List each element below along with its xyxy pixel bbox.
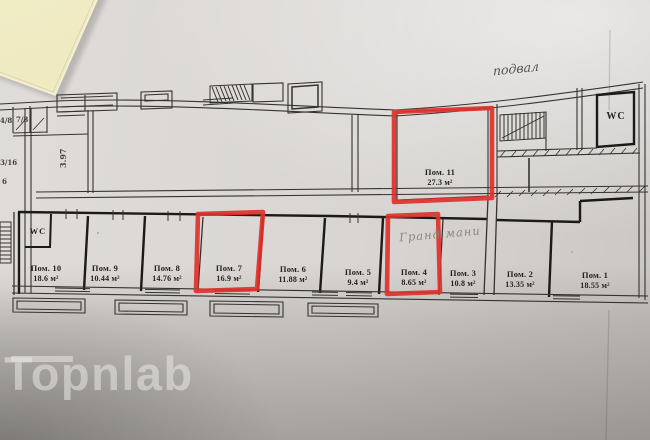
- room-name: Пом. 6: [257, 264, 329, 275]
- sticky-note: [0, 0, 146, 101]
- dimension-frac-c: 3/16: [0, 158, 17, 167]
- room-label-11: Пом. 11 27.3 м²: [404, 167, 476, 188]
- room-area: 11.88 м²: [257, 275, 329, 286]
- wc-lower-label: WC: [25, 226, 51, 236]
- room-label-7: Пом. 7 16.9 м²: [193, 263, 265, 284]
- room-name: Пом. 2: [484, 269, 556, 280]
- staircase-left-icon: [0, 222, 11, 263]
- room-name: Пом. 11: [404, 167, 476, 178]
- staircase-top-icon: [210, 84, 252, 103]
- dimension-height: 3.97: [58, 149, 68, 168]
- watermark-logo: Topnlab: [4, 346, 194, 401]
- staircase-right-icon: [500, 112, 546, 141]
- room-label-1: Пом. 1 18.55 м²: [559, 270, 631, 291]
- floor-plan-photo: подвал Гранд мани Пом. 11 27.3 м² WC WC …: [0, 0, 650, 440]
- room-area: 27.3 м²: [404, 178, 476, 189]
- room-area: 16.9 м²: [193, 274, 265, 285]
- dimension-frac-b: 7/8: [16, 115, 28, 124]
- room-label-6: Пом. 6 11.88 м²: [257, 264, 329, 285]
- window-bays: [13, 298, 378, 317]
- wc-upper-label: WC: [601, 111, 631, 122]
- room-label-2: Пом. 2 13.35 м²: [484, 269, 556, 290]
- room-area: 13.35 м²: [484, 280, 556, 291]
- room-area: 18.55 м²: [559, 281, 631, 292]
- dimension-frac-d: 6: [2, 177, 7, 186]
- room-name: Пом. 7: [193, 263, 265, 274]
- dimension-frac-a: 4/8: [0, 116, 12, 125]
- room-name: Пом. 1: [559, 270, 631, 281]
